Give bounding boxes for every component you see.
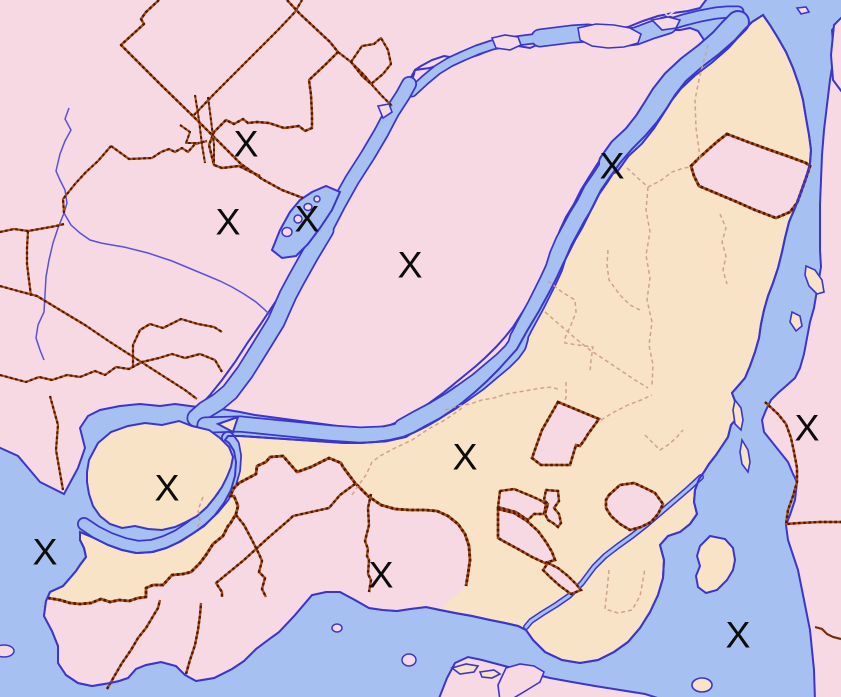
svg-text:X: X	[794, 407, 819, 449]
svg-text:X: X	[154, 467, 179, 509]
svg-text:X: X	[725, 614, 750, 656]
svg-text:X: X	[397, 244, 422, 286]
svg-text:X: X	[452, 436, 477, 478]
svg-text:X: X	[368, 554, 393, 596]
svg-text:X: X	[32, 531, 57, 573]
svg-text:X: X	[599, 145, 624, 187]
svg-text:X: X	[294, 198, 319, 240]
svg-text:X: X	[215, 201, 240, 243]
svg-text:X: X	[233, 123, 258, 165]
